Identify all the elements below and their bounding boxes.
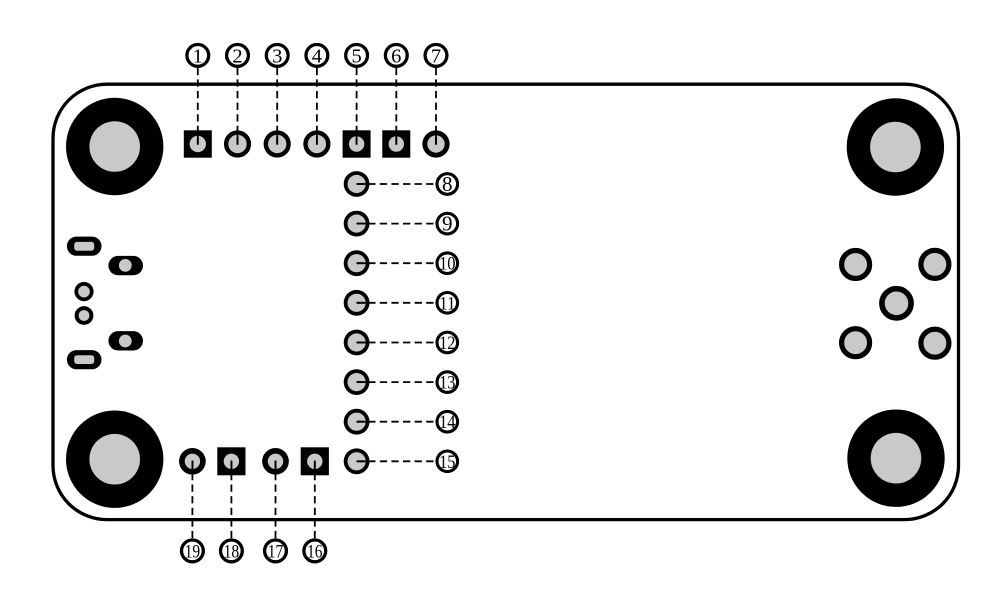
svg-text:12: 12 — [439, 333, 455, 354]
svg-text:10: 10 — [439, 254, 455, 275]
svg-text:5: 5 — [351, 45, 361, 67]
svg-text:7: 7 — [431, 45, 441, 67]
svg-text:4: 4 — [312, 45, 322, 67]
svg-text:6: 6 — [391, 45, 401, 67]
svg-text:19: 19 — [185, 542, 201, 562]
svg-text:18: 18 — [224, 542, 240, 562]
svg-text:15: 15 — [439, 452, 455, 473]
svg-text:16: 16 — [307, 542, 323, 562]
svg-text:14: 14 — [439, 412, 456, 433]
svg-text:2: 2 — [232, 45, 242, 67]
svg-text:11: 11 — [439, 293, 455, 314]
svg-text:8: 8 — [442, 172, 453, 196]
svg-text:3: 3 — [272, 45, 282, 67]
svg-text:9: 9 — [442, 212, 453, 236]
svg-text:13: 13 — [439, 373, 455, 394]
svg-text:1: 1 — [193, 45, 203, 67]
svg-text:17: 17 — [268, 542, 284, 562]
